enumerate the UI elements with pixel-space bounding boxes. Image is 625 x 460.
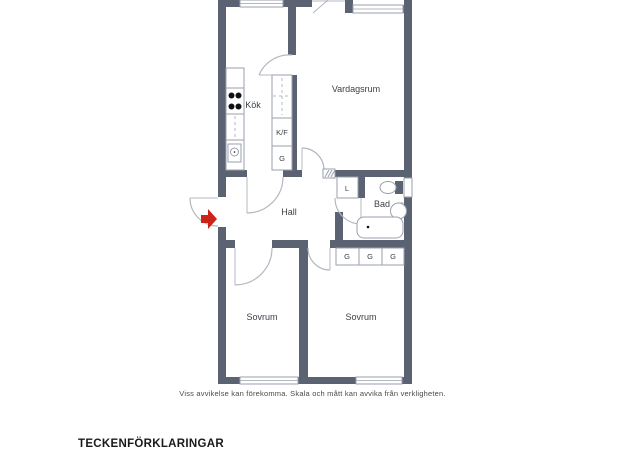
closet-label-g3: G bbox=[390, 252, 396, 261]
kitchen-fixtures bbox=[226, 68, 244, 170]
kitchen-sink-icon bbox=[228, 144, 241, 162]
closet-label-g-kitchen: G bbox=[279, 154, 285, 163]
room-label-hall: Hall bbox=[281, 207, 297, 217]
wall-hall-bottom-3 bbox=[330, 240, 404, 248]
closet-label-l: L bbox=[345, 184, 349, 193]
wall-hall-top-1 bbox=[226, 170, 247, 177]
bathtub-icon bbox=[357, 217, 403, 238]
wall-hall-top-2 bbox=[283, 170, 302, 177]
balcony-door-post bbox=[345, 0, 353, 13]
closet-label-g2: G bbox=[367, 252, 373, 261]
wall-kitchen-livingroom-stub bbox=[288, 7, 296, 55]
wall-cabinet-column bbox=[292, 75, 297, 170]
entrance bbox=[190, 197, 226, 229]
closet-label-g1: G bbox=[344, 252, 350, 261]
room-label-vardagsrum: Vardagsrum bbox=[332, 84, 380, 94]
room-label-kok: Kök bbox=[245, 100, 261, 110]
wall-left bbox=[218, 0, 226, 384]
room-label-bad: Bad bbox=[374, 199, 390, 209]
legend-heading: TECKENFÖRKLARINGAR bbox=[78, 438, 224, 450]
closet-label-kf: K/F bbox=[276, 128, 288, 137]
room-label-sovrum-left: Sovrum bbox=[246, 312, 277, 322]
room-label-sovrum-right: Sovrum bbox=[345, 312, 376, 322]
wall-bedroom-divider bbox=[299, 240, 308, 377]
disclaimer-text: Viss avvikelse kan förekomma. Skala och … bbox=[0, 389, 625, 398]
entrance-opening bbox=[218, 197, 226, 227]
wall-bath-left bbox=[358, 177, 365, 198]
toilet-icon bbox=[380, 181, 403, 194]
threshold-hatch bbox=[323, 169, 335, 178]
wall-hall-top-3 bbox=[335, 170, 404, 177]
floorplan-canvas: Kök Vardagsrum K/F G Hall L Bad G G G So… bbox=[0, 0, 625, 400]
bath-wall-niche bbox=[404, 178, 412, 197]
wall-hall-bottom-1 bbox=[218, 240, 235, 248]
